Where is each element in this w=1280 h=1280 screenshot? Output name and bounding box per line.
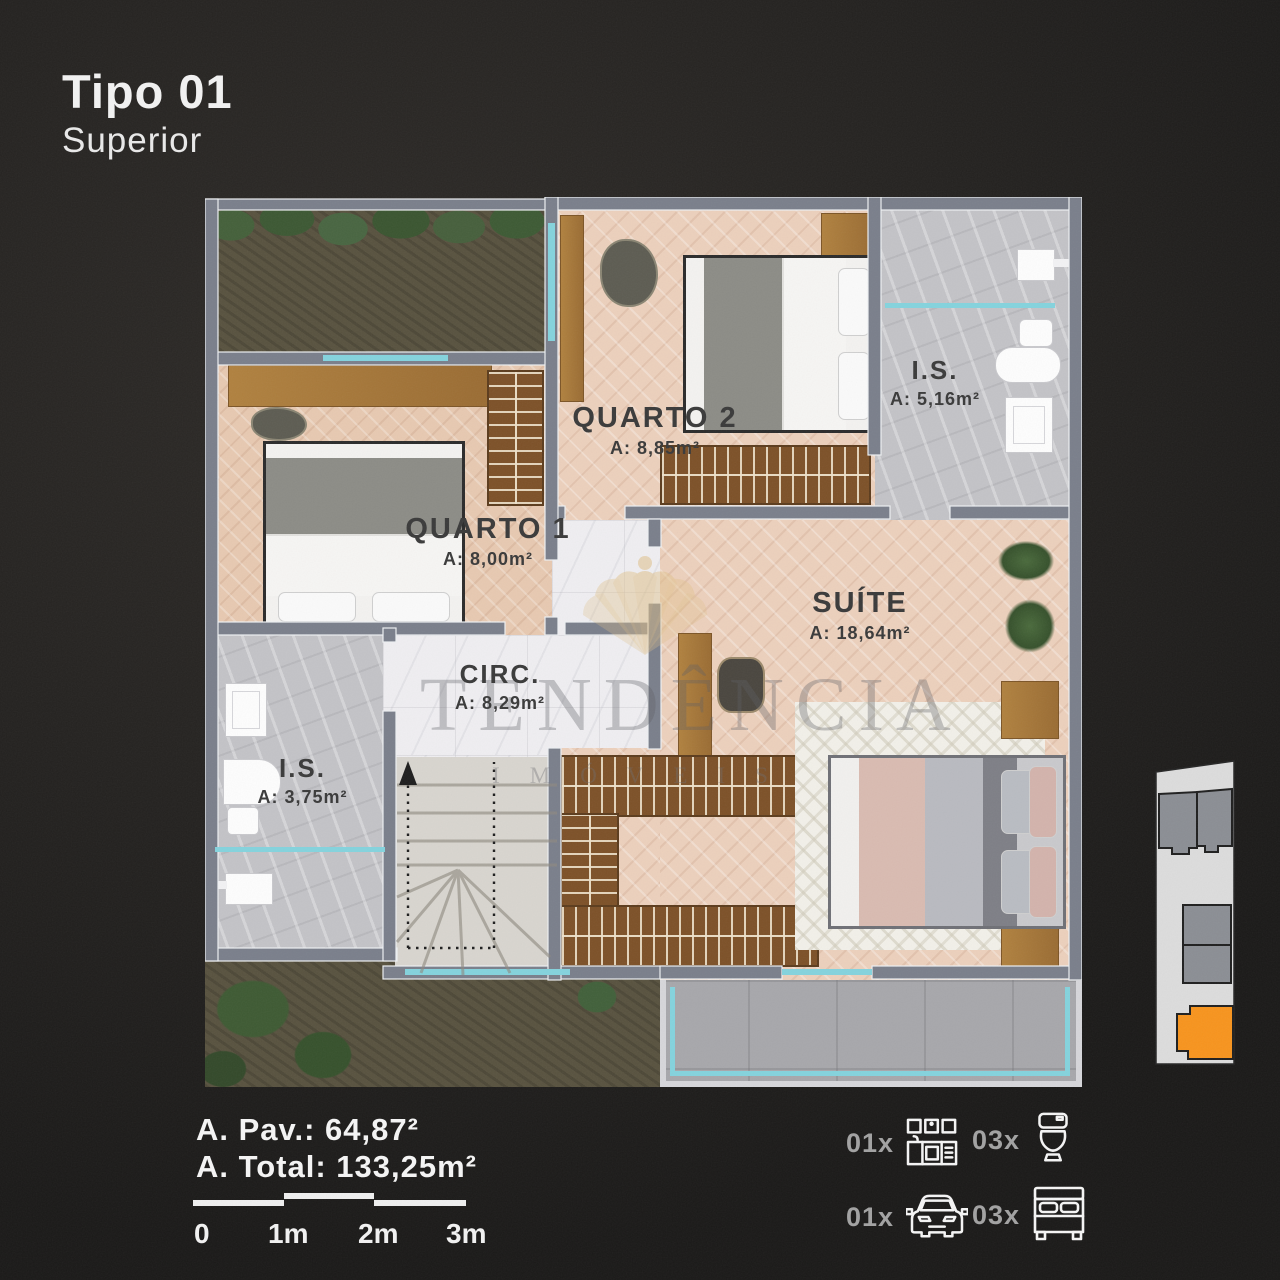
key-plan-unit [1183,905,1231,945]
label-is-top: I.S. A: 5,16m² [855,355,1015,410]
room-area: A: 8,29m² [400,693,600,714]
toilet-icon [1032,1112,1074,1168]
key-plan-unit [1197,789,1232,852]
label-quarto2: QUARTO 2 A: 8,85m² [550,402,760,459]
arrow-head [399,761,417,785]
bed-icon [1032,1186,1086,1244]
scale-label: 0 [194,1218,210,1250]
key-plan-unit [1183,945,1231,983]
scale-segment [193,1200,284,1206]
key-plan [1145,752,1255,1097]
label-is-left: I.S. A: 3,75m² [220,753,385,808]
legend-bed: 03x [972,1186,1086,1244]
stair-direction-arrow [408,762,494,948]
legend-count: 03x [972,1125,1020,1156]
room-name: I.S. [220,753,385,784]
room-area: A: 18,64m² [755,623,965,644]
label-suite: SUÍTE A: 18,64m² [755,587,965,644]
label-quarto1: QUARTO 1 A: 8,00m² [383,513,593,570]
room-area: A: 8,00m² [383,549,593,570]
kitchen-icon [906,1118,960,1168]
scale-label: 1m [268,1218,308,1250]
legend-count: 03x [972,1200,1020,1231]
label-circ: CIRC. A: 8,29m² [400,659,600,714]
area-stats: A. Pav.: 64,87² A. Total: 133,25m² [196,1112,477,1185]
area-total: A. Total: 133,25m² [196,1149,477,1186]
room-area: A: 3,75m² [220,787,385,808]
room-area: A: 8,85m² [550,438,760,459]
plan-floor-subtitle: Superior [62,123,233,158]
plan-type-title: Tipo 01 [62,68,233,115]
legend-kitchen: 01x [846,1118,960,1168]
legend-count: 01x [846,1128,894,1159]
room-area: A: 5,16m² [855,389,1015,410]
legend-count: 01x [846,1202,894,1233]
scale-label: 2m [358,1218,398,1250]
room-name: SUÍTE [755,587,965,620]
room-name: CIRC. [400,659,600,690]
page-title: Tipo 01 Superior [62,68,233,158]
room-name: I.S. [855,355,1015,386]
flyer-canvas: Tipo 01 Superior [0,0,1280,1280]
scale-label: 3m [446,1218,486,1250]
key-plan-highlighted-unit [1177,1006,1233,1059]
scale-segment [284,1193,374,1199]
scale-segment [374,1200,466,1206]
stair-treads [397,785,557,975]
legend-car: 01x [846,1192,968,1242]
car-icon [906,1192,968,1242]
area-pavement: A. Pav.: 64,87² [196,1112,477,1149]
floor-plan: TENDÊNCIA IMÓVEIS QUARTO 2 A: 8,85m² I.S… [205,197,1082,1090]
legend-toilet: 03x [972,1112,1074,1168]
key-plan-unit [1159,792,1197,854]
room-name: QUARTO 1 [383,513,593,546]
room-name: QUARTO 2 [550,402,760,435]
